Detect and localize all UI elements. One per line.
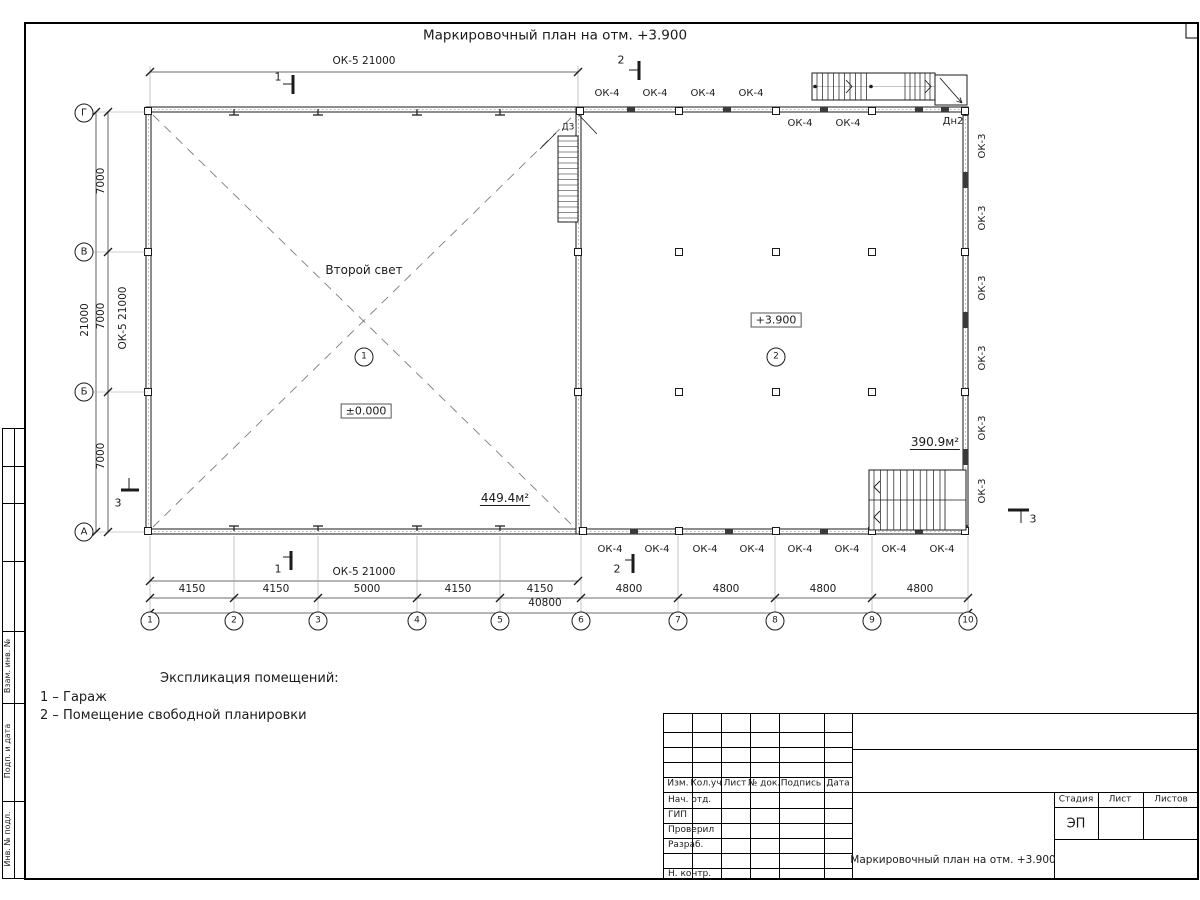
strip-label-inv: Инв. № подл. <box>4 811 12 866</box>
dim-7000: 7000 <box>96 168 107 195</box>
stair-bottom-right <box>869 470 966 530</box>
dim-col: 4800 <box>616 584 643 595</box>
dim-col: 5000 <box>354 584 381 595</box>
tb-stage-value: ЭП <box>1067 818 1086 831</box>
axis-bubble-2: 2 <box>225 612 244 631</box>
legend-item-2: 2 – Помещение свободной планировки <box>40 709 307 722</box>
dim-col: 4800 <box>713 584 740 595</box>
second-light-diagonals <box>153 115 574 527</box>
dim-col: 4800 <box>907 584 934 595</box>
sheet-title: Маркировочный план на отм. +3.900 <box>423 29 687 43</box>
dim-ok5-bottom: ОК-5 21000 <box>333 567 396 578</box>
section-2-bottom: 2 <box>614 564 621 575</box>
elevation-390: +3.900 <box>751 313 802 328</box>
strip-label-vzam: Взам. инв. № <box>4 639 12 693</box>
strip-label-podp: Подп. и дата <box>4 724 12 779</box>
tb-row-nach-otd: Нач. отд. <box>668 796 711 805</box>
tb-row-nkontr: Н. контр. <box>668 870 711 879</box>
axis-bubble-v: В <box>75 243 94 262</box>
second-light-label: Второй свет <box>325 264 402 276</box>
legend-heading: Экспликация помещений: <box>160 672 339 685</box>
tb-col-podpis: Подпись <box>781 780 821 789</box>
room-number-2: 2 <box>767 348 786 367</box>
legend-item-1: 1 – Гараж <box>40 691 107 704</box>
dim-7000: 7000 <box>96 443 107 470</box>
window-label-ok4: ОК-4 <box>693 545 718 555</box>
window-label-ok3: ОК-3 <box>978 416 988 441</box>
window-label-ok4: ОК-4 <box>595 89 620 99</box>
window-label-ok4: ОК-4 <box>835 545 860 555</box>
window-label-ok4: ОК-4 <box>739 89 764 99</box>
dim-col: 4150 <box>527 584 554 595</box>
window-label-ok3: ОК-3 <box>978 479 988 504</box>
window-label-ok4: ОК-4 <box>691 89 716 99</box>
i-beam-columns <box>229 109 505 531</box>
stair-exterior <box>812 73 967 105</box>
window-label-ok4: ОК-4 <box>788 545 813 555</box>
window-label-ok3: ОК-3 <box>978 346 988 371</box>
section-3-left: 3 <box>115 498 122 509</box>
axis-bubble-6: 6 <box>572 612 591 631</box>
dim-7000: 7000 <box>96 303 107 330</box>
dim-col: 4150 <box>179 584 206 595</box>
dim-ok5-top: ОК-5 21000 <box>333 56 396 67</box>
tb-col-izm: Изм. <box>667 780 688 789</box>
window-label-ok4: ОК-4 <box>645 545 670 555</box>
window-label-ok4: ОК-4 <box>930 545 955 555</box>
window-label-ok4: ОК-4 <box>836 119 861 129</box>
tb-stage-label: Стадия <box>1059 796 1094 805</box>
tb-col-list: Лист <box>724 780 747 789</box>
axis-bubble-7: 7 <box>669 612 688 631</box>
window-label-ok3: ОК-3 <box>978 134 988 159</box>
axis-bubble-1: 1 <box>141 612 160 631</box>
room-number-1: 1 <box>355 348 374 367</box>
dim-col: 4150 <box>263 584 290 595</box>
axis-bubble-3: 3 <box>309 612 328 631</box>
columns <box>145 108 969 535</box>
window-label-ok4: ОК-4 <box>882 545 907 555</box>
section-3-right: 3 <box>1030 514 1037 525</box>
room2-area: 390.9м² <box>910 436 960 450</box>
tb-sheet-label: Лист <box>1109 796 1132 805</box>
tb-doc-title: Маркировочный план на отм. +3.900 <box>850 855 1055 866</box>
window-label-ok3: ОК-3 <box>978 206 988 231</box>
elevation-zero: ±0.000 <box>341 404 392 419</box>
axis-bubble-5: 5 <box>491 612 510 631</box>
room1-area: 449.4м² <box>480 492 530 506</box>
axis-bubble-a: А <box>75 523 94 542</box>
dim-total-left: 21000 <box>80 303 91 336</box>
door-label-d3: Д3 <box>561 124 576 133</box>
window-label-ok4: ОК-4 <box>598 545 623 555</box>
window-label-ok4: ОК-4 <box>643 89 668 99</box>
tb-sheets-label: Листов <box>1154 796 1188 805</box>
section-1-top: 1 <box>275 72 282 83</box>
axis-bubble-g: Г <box>75 104 94 123</box>
drawing-sheet: Маркировочный план на отм. +3.900 ОК-5 2… <box>0 0 1200 900</box>
wall-texture <box>146 107 968 534</box>
window-label-ok3: ОК-3 <box>978 276 988 301</box>
axis-bubble-4: 4 <box>408 612 427 631</box>
tb-row-proveril: Проверил <box>668 826 714 835</box>
axis-bubble-8: 8 <box>766 612 785 631</box>
dim-total-bottom: 40800 <box>528 598 561 609</box>
dim-col: 4150 <box>445 584 472 595</box>
axis-bubble-b: Б <box>75 383 94 402</box>
tb-row-razrab: Разраб. <box>668 841 703 850</box>
window-label-ok4: ОК-4 <box>740 545 765 555</box>
dimension-ticks <box>92 68 972 617</box>
dim-col: 4800 <box>810 584 837 595</box>
tb-col-data: Дата <box>826 780 849 789</box>
dim-ok5-left: ОК-5 21000 <box>118 287 129 350</box>
window-label-ok4: ОК-4 <box>788 119 813 129</box>
tb-row-gip: ГИП <box>668 811 687 820</box>
tb-col-ndok: № док. <box>748 780 780 789</box>
door-label-dn2: Дн2 <box>943 117 964 127</box>
tb-col-koluch: Кол.уч <box>690 780 721 789</box>
walls <box>146 107 968 534</box>
title-block: Изм. Кол.уч Лист № док. Подпись Дата Нач… <box>663 713 1198 879</box>
section-1-bottom: 1 <box>275 564 282 575</box>
axis-bubble-9: 9 <box>863 612 882 631</box>
axis-bubble-10: 10 <box>959 612 978 631</box>
section-2-top: 2 <box>618 55 625 66</box>
